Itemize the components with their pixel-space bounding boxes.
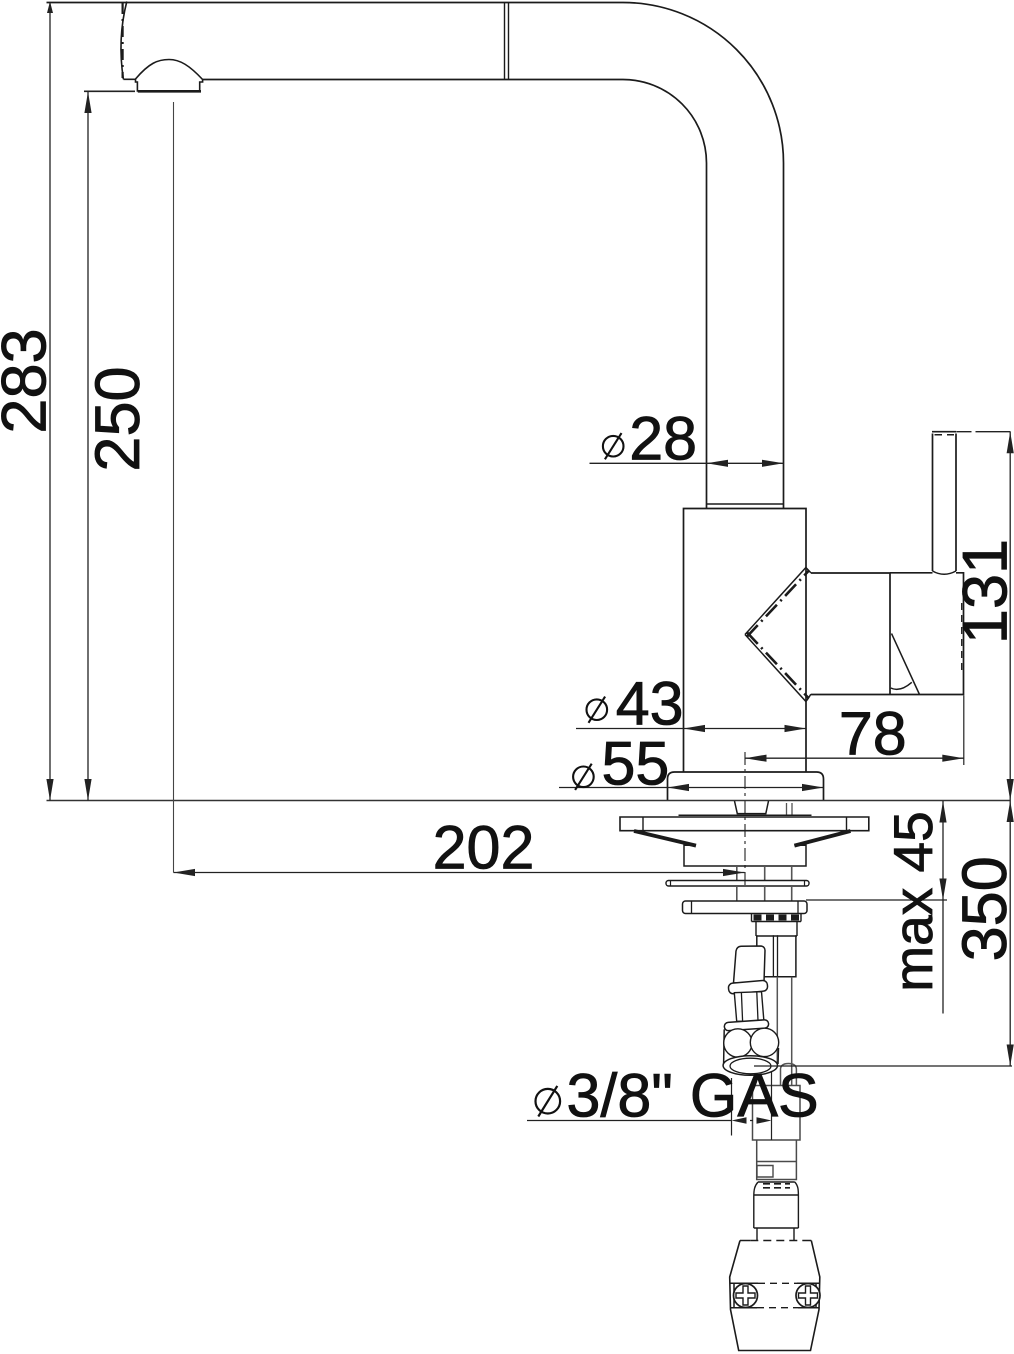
svg-text:350: 350 bbox=[950, 856, 1014, 961]
svg-text:43: 43 bbox=[616, 670, 684, 738]
svg-text:3/8" GAS: 3/8" GAS bbox=[567, 1062, 819, 1130]
svg-text:131: 131 bbox=[951, 539, 1014, 644]
svg-text:28: 28 bbox=[629, 405, 697, 473]
svg-text:max 45: max 45 bbox=[882, 811, 944, 991]
svg-text:55: 55 bbox=[602, 730, 670, 798]
svg-text:78: 78 bbox=[839, 700, 907, 768]
svg-text:283: 283 bbox=[0, 328, 60, 433]
svg-text:202: 202 bbox=[433, 814, 535, 882]
svg-text:250: 250 bbox=[83, 366, 153, 471]
